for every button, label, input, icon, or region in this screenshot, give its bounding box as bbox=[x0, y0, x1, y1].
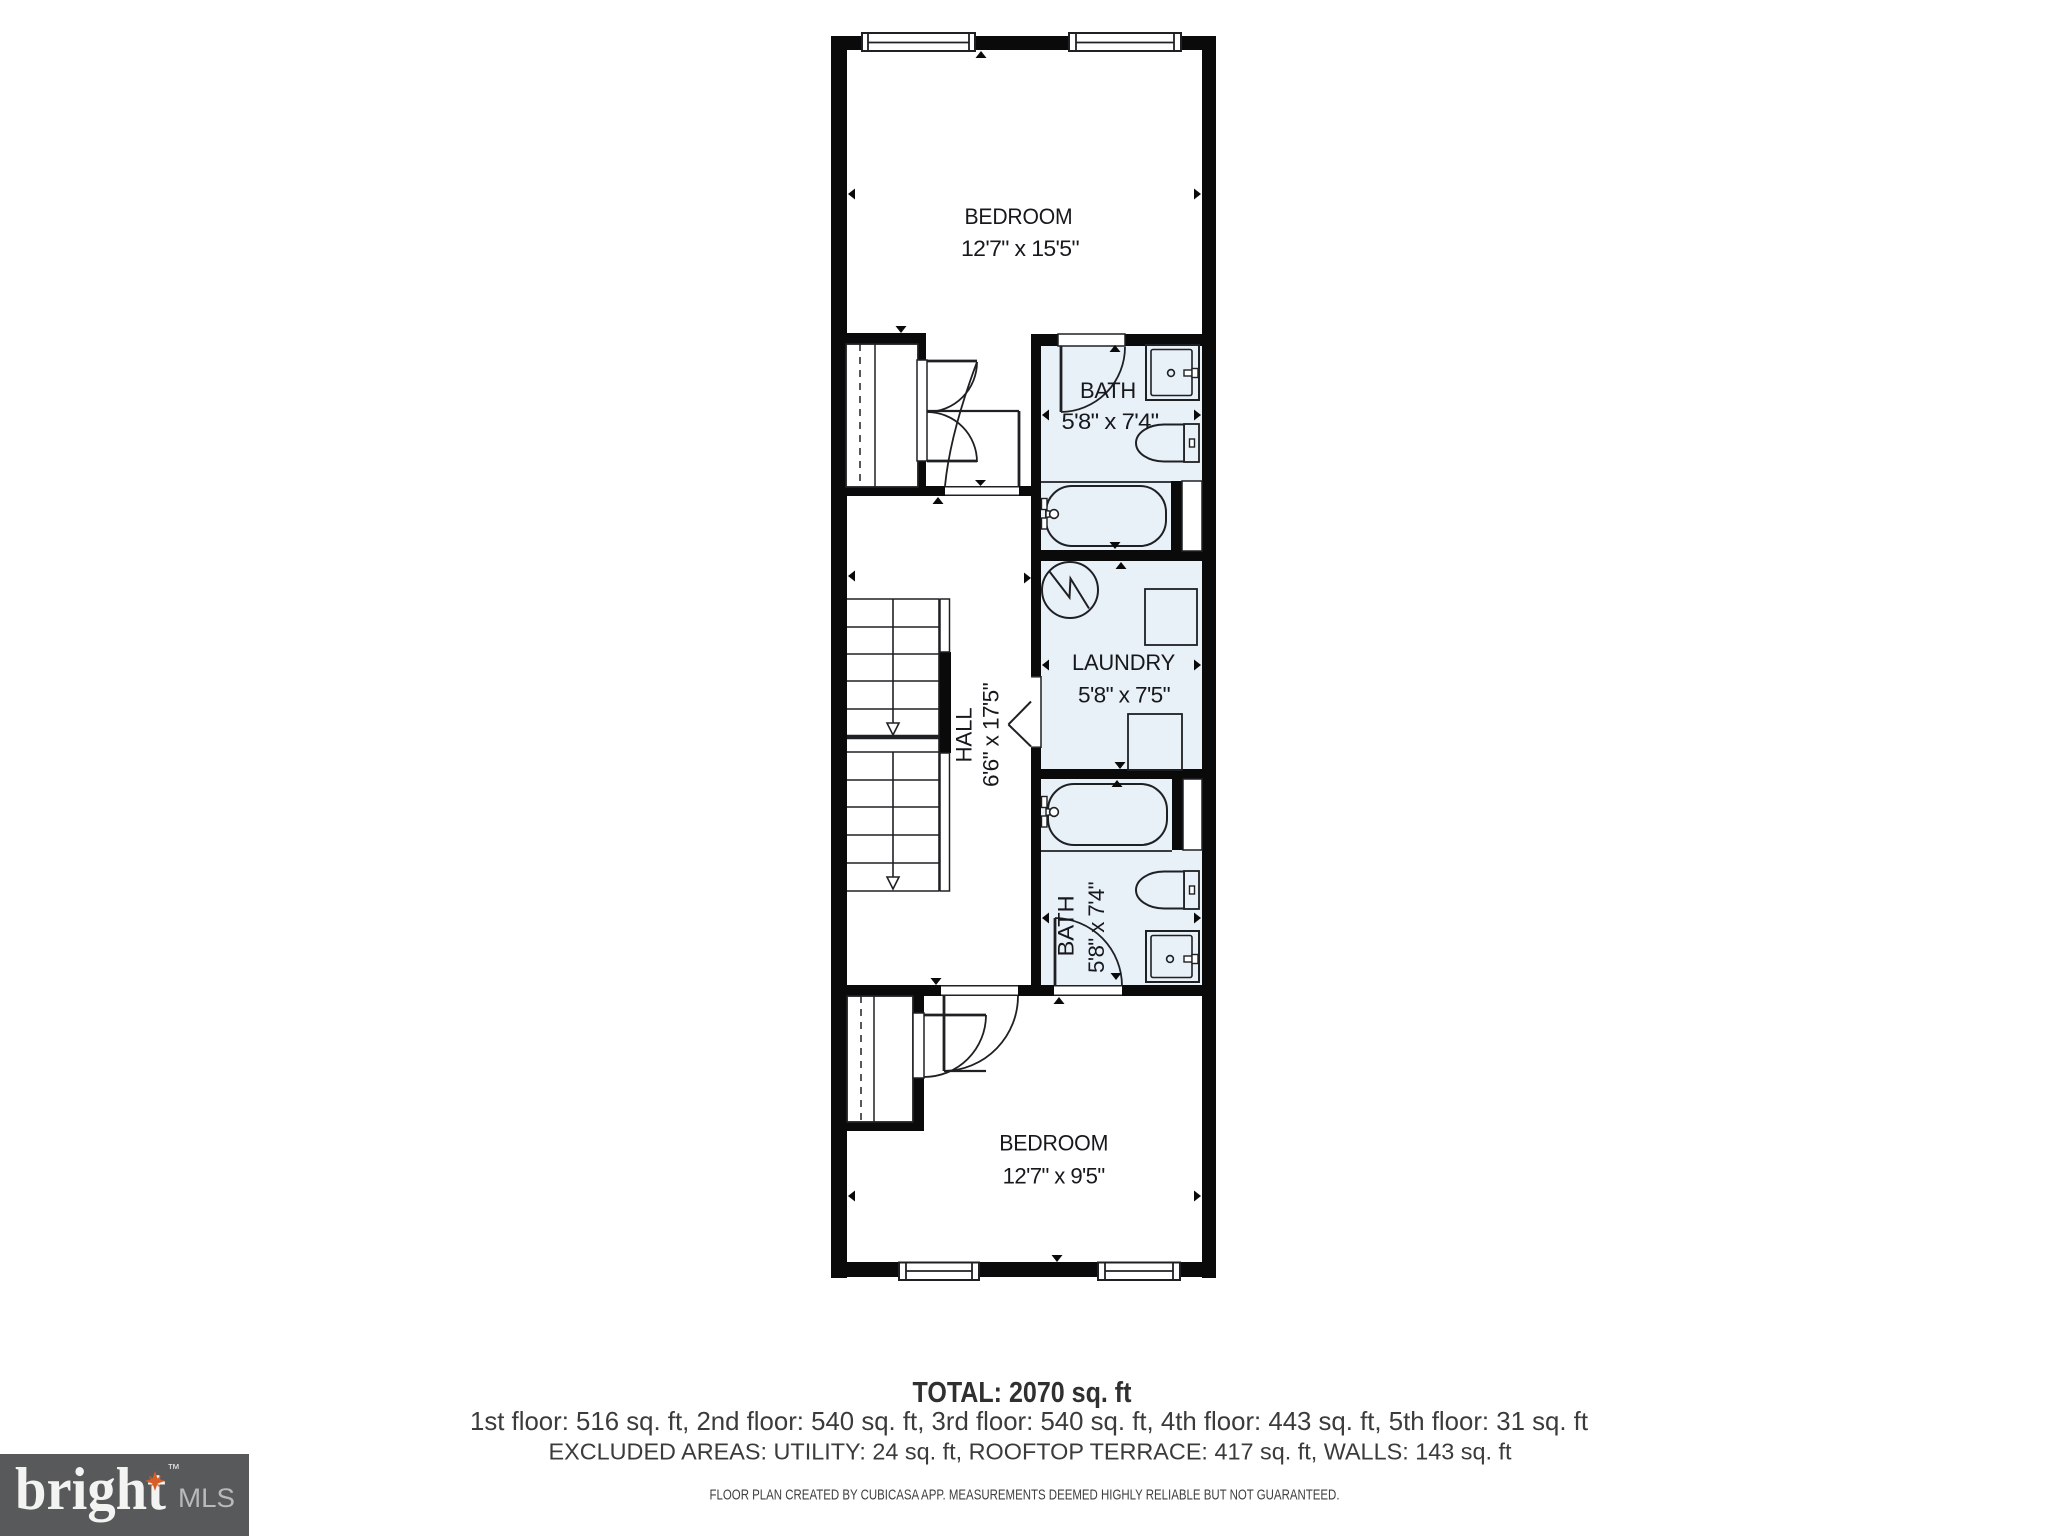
svg-text:bright: bright bbox=[15, 1456, 166, 1522]
svg-text:6'6" x 17'5": 6'6" x 17'5" bbox=[979, 683, 1004, 787]
svg-text:5'8" x 7'4": 5'8" x 7'4" bbox=[1084, 882, 1109, 973]
svg-text:LAUNDRY: LAUNDRY bbox=[1072, 650, 1176, 675]
svg-text:1st floor: 516 sq. ft, 2nd flo: 1st floor: 516 sq. ft, 2nd floor: 540 sq… bbox=[470, 1406, 1589, 1436]
svg-text:5'8" x 7'5": 5'8" x 7'5" bbox=[1078, 683, 1170, 708]
svg-text:BEDROOM: BEDROOM bbox=[999, 1131, 1108, 1156]
svg-text:BATH: BATH bbox=[1080, 378, 1136, 403]
svg-text:12'7" x 15'5": 12'7" x 15'5" bbox=[961, 236, 1079, 261]
svg-text:HALL: HALL bbox=[951, 708, 976, 763]
svg-text:™: ™ bbox=[167, 1461, 180, 1476]
svg-text:EXCLUDED AREAS: UTILITY: 24 sq: EXCLUDED AREAS: UTILITY: 24 sq. ft, ROOF… bbox=[549, 1439, 1513, 1465]
svg-text:FLOOR PLAN CREATED BY CUBICASA: FLOOR PLAN CREATED BY CUBICASA APP. MEAS… bbox=[710, 1487, 1340, 1504]
svg-text:BEDROOM: BEDROOM bbox=[965, 204, 1073, 229]
svg-text:5'8" x 7'4": 5'8" x 7'4" bbox=[1062, 409, 1159, 434]
svg-text:BATH: BATH bbox=[1053, 896, 1078, 957]
svg-text:MLS: MLS bbox=[178, 1483, 235, 1513]
svg-text:12'7" x 9'5": 12'7" x 9'5" bbox=[1003, 1164, 1105, 1189]
svg-text:TOTAL: 2070 sq. ft: TOTAL: 2070 sq. ft bbox=[913, 1377, 1132, 1409]
